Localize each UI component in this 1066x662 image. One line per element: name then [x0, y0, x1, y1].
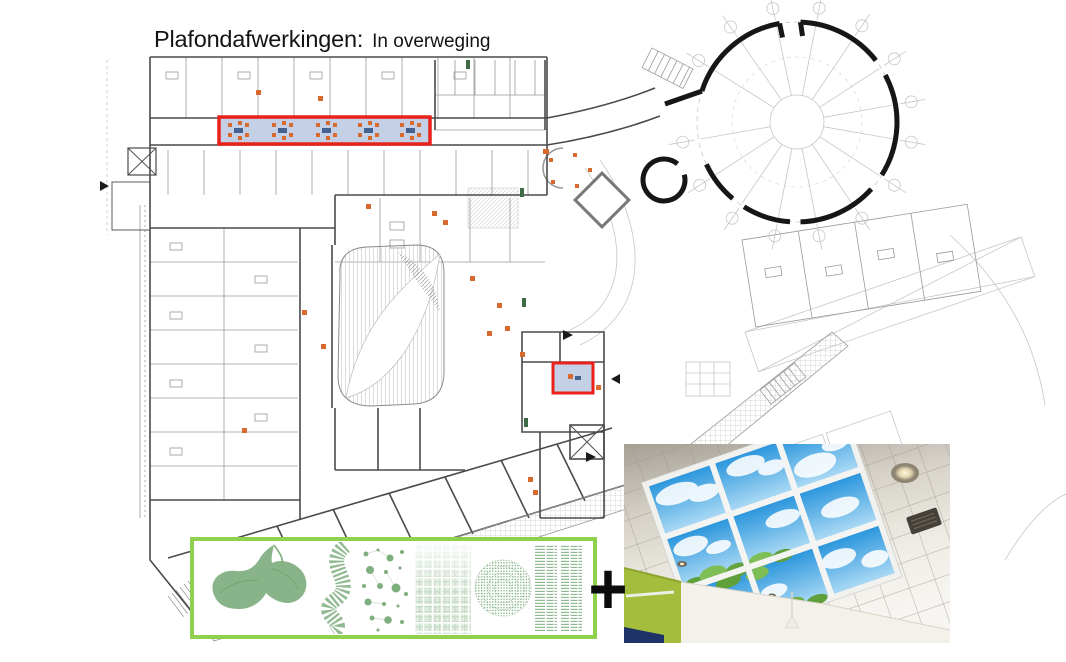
pattern-pixel-mosaic	[415, 542, 471, 634]
plus-sign: +	[581, 547, 636, 634]
pattern-text-columns	[535, 542, 585, 634]
pavilion-walls	[665, 22, 897, 222]
downlight	[891, 463, 919, 483]
round-pavilion	[643, 0, 926, 251]
pattern-dot-cluster	[356, 542, 414, 634]
pattern-ornament-circle	[472, 542, 534, 634]
pattern-maple-seed	[202, 543, 314, 633]
sky-ceiling-photo	[624, 444, 950, 643]
slide: { "slide": { "title": "Plafondafwerkinge…	[0, 0, 1066, 662]
pattern-wave-lines	[315, 542, 355, 634]
plant-marks	[466, 60, 528, 427]
round-room-wall	[643, 159, 685, 201]
courtyard	[338, 245, 444, 406]
ceiling-pattern-board	[190, 537, 597, 639]
